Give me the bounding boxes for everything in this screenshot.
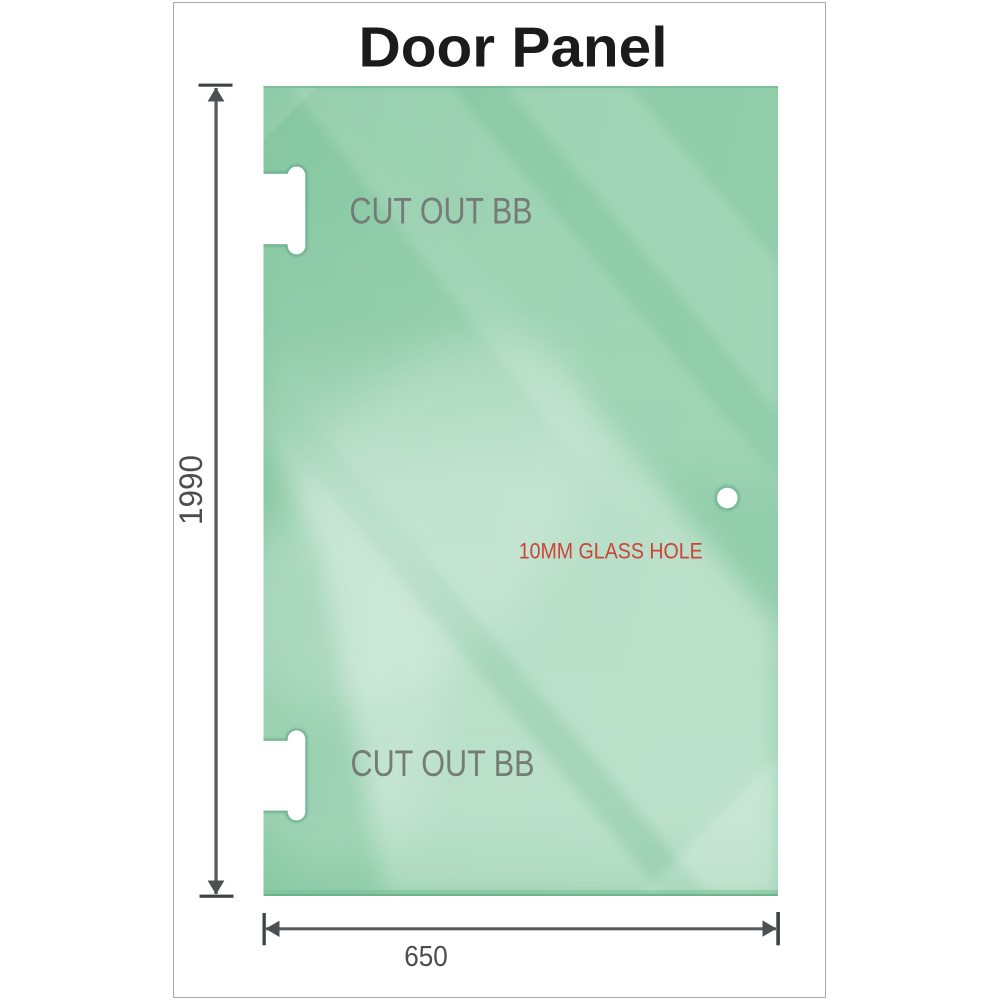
svg-text:Door Panel: Door Panel (359, 16, 668, 80)
svg-text:CUT OUT BB: CUT OUT BB (351, 743, 535, 784)
svg-text:650: 650 (404, 941, 448, 973)
svg-text:10MM GLASS HOLE: 10MM GLASS HOLE (519, 539, 703, 564)
svg-text:1990: 1990 (173, 455, 209, 525)
svg-text:CUT OUT BB: CUT OUT BB (350, 191, 533, 232)
